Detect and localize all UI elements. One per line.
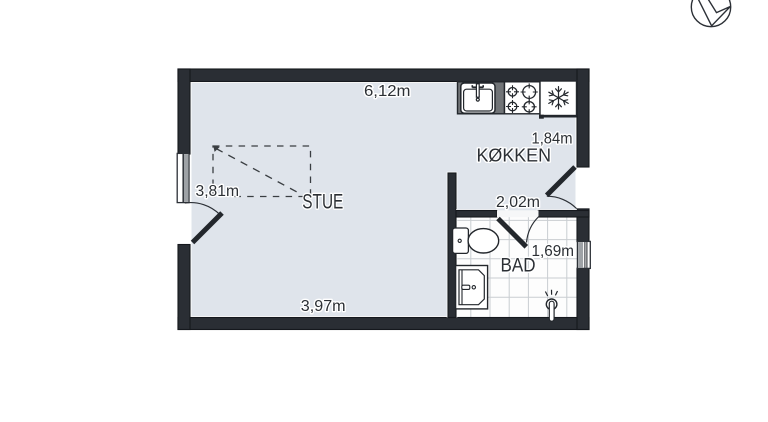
svg-text:BAD: BAD xyxy=(501,255,536,277)
svg-text:2,02m: 2,02m xyxy=(496,194,540,211)
svg-text:KØKKEN: KØKKEN xyxy=(477,146,552,166)
svg-text:6,12m: 6,12m xyxy=(364,83,411,100)
svg-text:STUE: STUE xyxy=(302,190,343,213)
svg-text:3,97m: 3,97m xyxy=(301,298,346,315)
svg-text:3,81m: 3,81m xyxy=(196,183,240,200)
svg-text:1,69m: 1,69m xyxy=(532,243,575,260)
